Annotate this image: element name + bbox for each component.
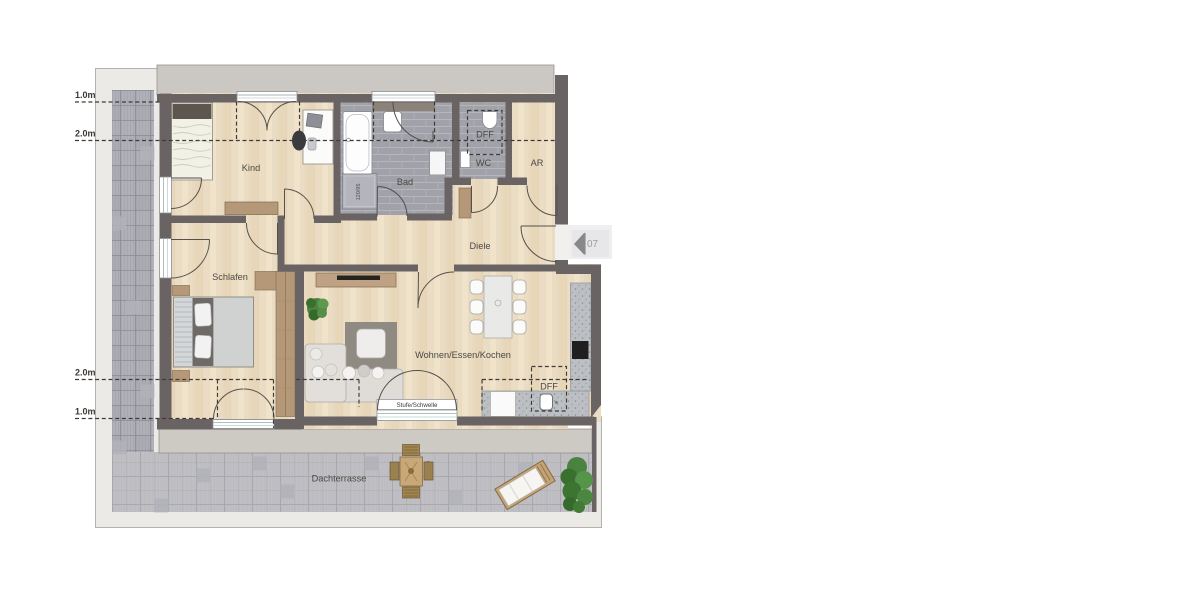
svg-text:DFF: DFF <box>540 382 558 392</box>
svg-text:2.0m: 2.0m <box>75 368 96 378</box>
svg-text:WC: WC <box>476 158 492 168</box>
svg-text:Bad: Bad <box>397 177 413 187</box>
svg-text:Stufe/Schwelle: Stufe/Schwelle <box>397 402 438 409</box>
svg-text:Schlafen: Schlafen <box>212 272 248 282</box>
svg-text:1.0m: 1.0m <box>75 90 96 100</box>
svg-text:1.0m: 1.0m <box>75 407 96 417</box>
svg-text:Wohnen/Essen/Kochen: Wohnen/Essen/Kochen <box>415 350 511 360</box>
svg-text:2.0m: 2.0m <box>75 129 96 139</box>
svg-text:07: 07 <box>587 239 599 250</box>
svg-text:Dachterrasse: Dachterrasse <box>312 474 367 484</box>
svg-text:AR: AR <box>531 158 544 168</box>
svg-text:120/95: 120/95 <box>356 184 362 201</box>
svg-text:Kind: Kind <box>242 163 260 173</box>
svg-text:DFF: DFF <box>476 130 494 140</box>
svg-text:Diele: Diele <box>470 241 491 251</box>
